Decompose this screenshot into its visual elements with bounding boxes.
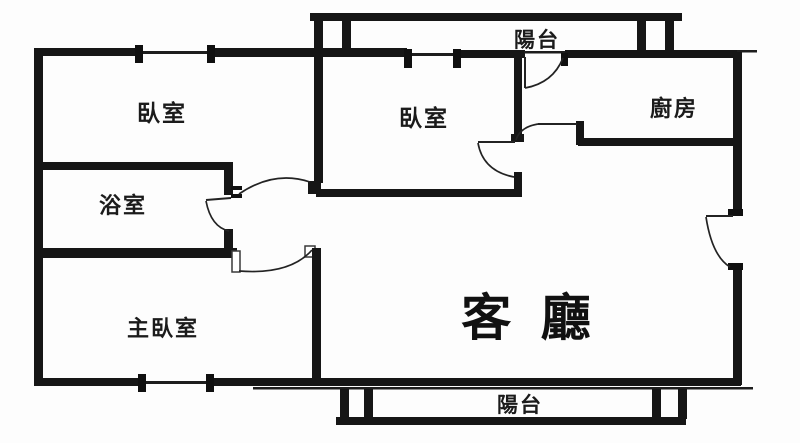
- window-master-tick-1: [138, 374, 146, 392]
- window-bedroom-middle-tick-2: [453, 49, 461, 68]
- top-wall-segment-d: [565, 50, 737, 58]
- living-door-jamb-top: [728, 209, 743, 216]
- window-top-left-tick-1: [135, 45, 143, 63]
- bedroom-left-door-tick-2: [231, 194, 242, 198]
- divider-bedrooms-wall: [314, 53, 323, 183]
- window-top-left-glass: [143, 51, 209, 54]
- bottom-wall-segment-a: [34, 378, 140, 386]
- label-balcony-bottom: 陽台: [497, 393, 543, 417]
- living-door-arc: [706, 217, 730, 267]
- bathroom-bottom-wall: [38, 248, 237, 258]
- balcony-top-stub-3: [637, 19, 646, 57]
- bedroom-middle-bottom-wall: [316, 189, 522, 197]
- floor-plan-canvas: 陽台 臥室 臥室 廚房 浴室 主臥室 客 廳 陽台: [0, 0, 800, 443]
- kitchen-door-right-jamb: [576, 121, 584, 145]
- bathroom-door-arc: [206, 201, 229, 231]
- bedroom-left-door-tick-1: [231, 186, 242, 190]
- balcony-bottom-outer-wall: [336, 417, 686, 425]
- balcony-bottom-stub-4: [678, 389, 687, 419]
- doors: [206, 53, 743, 272]
- master-door-arc: [239, 250, 312, 272]
- label-balcony-top: 陽台: [514, 28, 560, 52]
- bedroom-left-door-arc: [239, 178, 310, 194]
- balcony-top-outer-wall: [310, 13, 682, 21]
- window-bedroom-middle-glass: [412, 53, 456, 56]
- top-wall-segment-a: [34, 48, 137, 56]
- balcony-door-arc: [525, 58, 563, 88]
- master-door-left-jamb: [232, 251, 240, 272]
- label-living-room: 客 廳: [461, 289, 596, 347]
- bedroom-middle-right-wall: [514, 53, 522, 138]
- top-wall-segment-b: [215, 48, 407, 57]
- bathroom-top-wall: [38, 162, 232, 170]
- right-wall-upper: [733, 52, 742, 210]
- window-master-tick-2: [206, 374, 214, 392]
- right-wall-lower: [733, 270, 742, 385]
- label-bedroom-middle: 臥室: [399, 105, 449, 132]
- balcony-top-stub-2: [342, 19, 351, 57]
- balcony-bottom-stub-2: [364, 389, 373, 419]
- bedroom-middle-door-arc: [478, 143, 514, 177]
- bedroom-middle-door-bottom-stub: [514, 172, 522, 194]
- balcony-top-stub-4: [665, 19, 674, 57]
- window-master-glass: [146, 381, 208, 384]
- label-bathroom: 浴室: [99, 193, 147, 219]
- label-master-bedroom: 主臥室: [127, 316, 199, 342]
- left-wall: [34, 48, 43, 386]
- living-room-west-wall: [312, 248, 321, 383]
- floor-plan: 陽台 臥室 臥室 廚房 浴室 主臥室 客 廳 陽台: [0, 0, 800, 443]
- label-bedroom-top-left: 臥室: [137, 100, 187, 127]
- bathroom-door-leaf: [206, 198, 231, 200]
- kitchen-bottom-wall: [578, 138, 741, 146]
- window-bedroom-middle-tick-1: [404, 49, 412, 68]
- bottom-wall-segment-b: [214, 378, 741, 386]
- window-top-left-tick-2: [207, 45, 215, 63]
- bathroom-door-upper-stub: [224, 162, 233, 195]
- room-labels: 陽台 臥室 臥室 廚房 浴室 主臥室 客 廳 陽台: [99, 28, 698, 417]
- balcony-bottom-stub-3: [652, 389, 661, 419]
- balcony-top-stub-1: [314, 19, 323, 57]
- label-kitchen: 廚房: [650, 96, 698, 122]
- balcony-bottom-stub-1: [340, 389, 349, 419]
